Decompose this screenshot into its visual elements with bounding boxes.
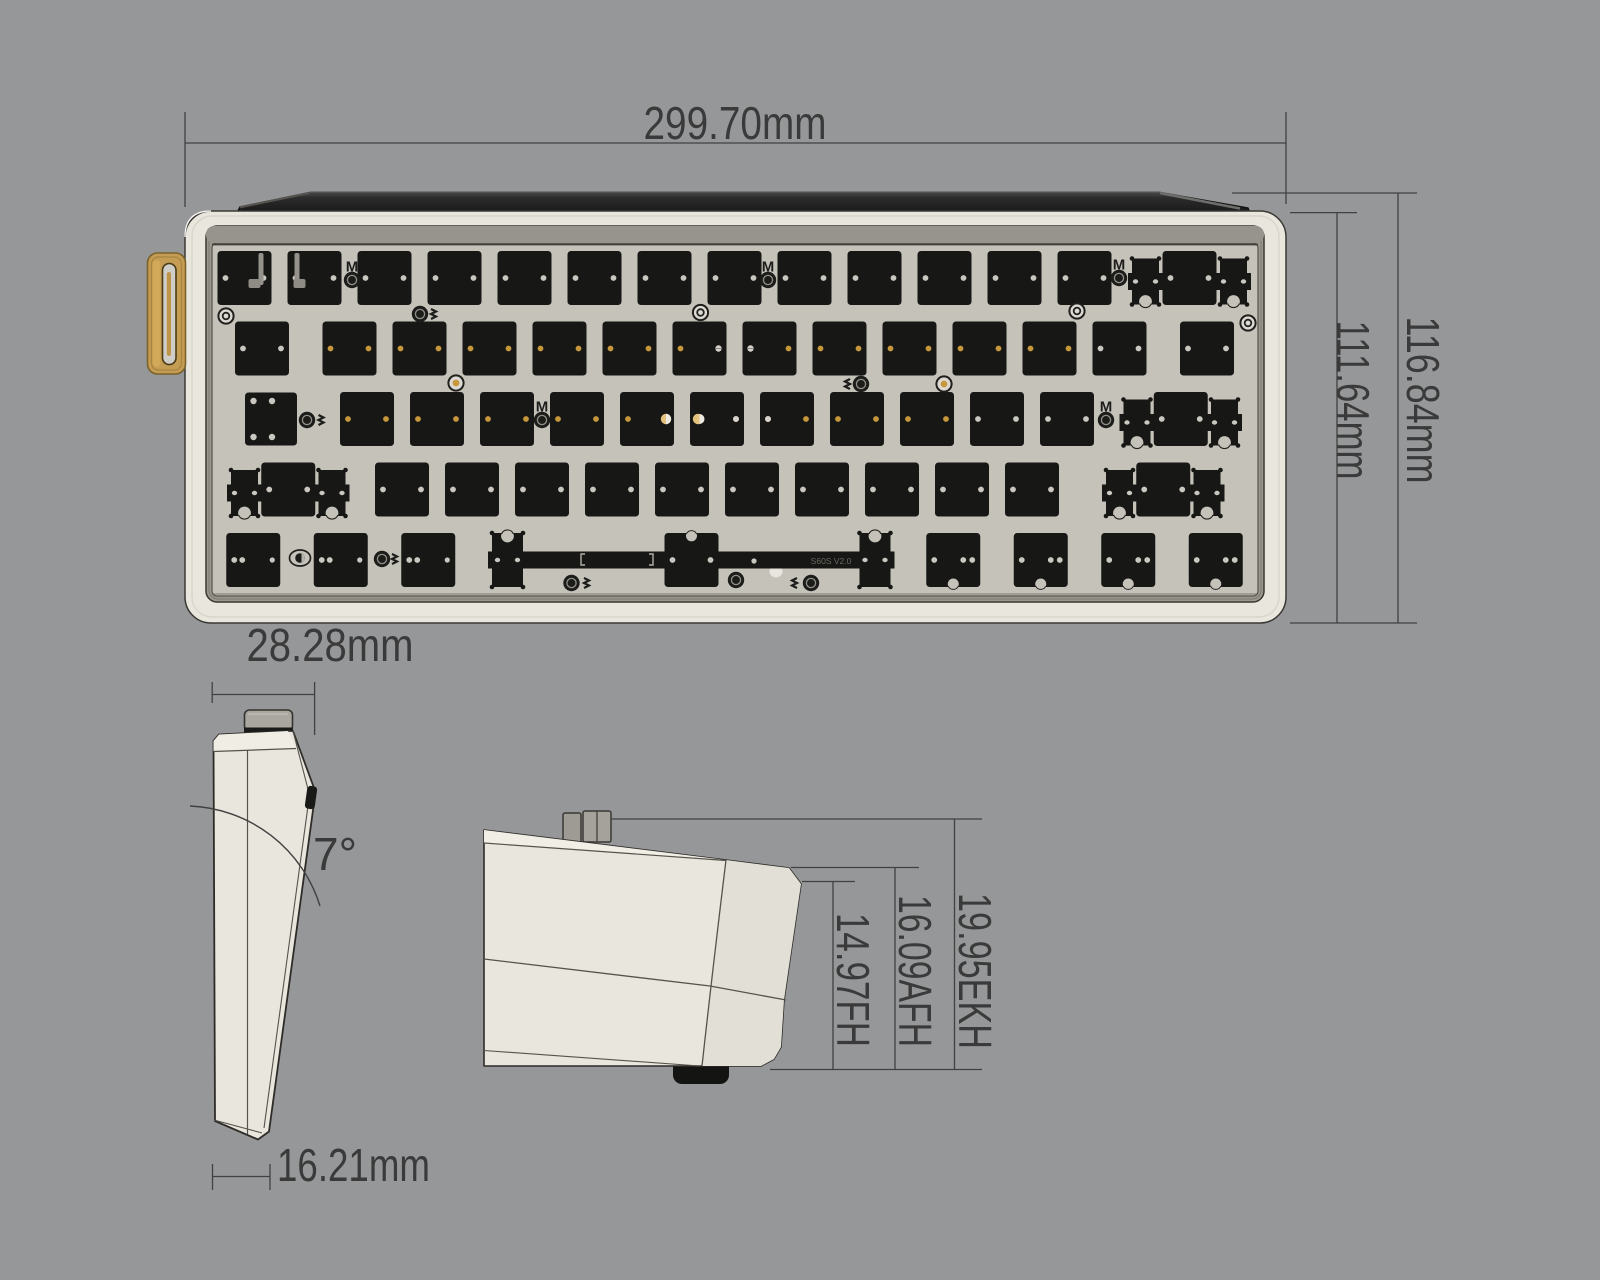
svg-text:299.70mm: 299.70mm bbox=[644, 97, 827, 149]
svg-text:16.09AFH: 16.09AFH bbox=[889, 895, 941, 1047]
svg-text:19.95EKH: 19.95EKH bbox=[949, 893, 1001, 1049]
svg-text:28.28mm: 28.28mm bbox=[247, 619, 414, 671]
svg-text:16.21mm: 16.21mm bbox=[277, 1139, 430, 1191]
svg-text:S60S V2.0: S60S V2.0 bbox=[811, 556, 852, 566]
svg-text:14.97FH: 14.97FH bbox=[827, 913, 879, 1047]
svg-text:7°: 7° bbox=[313, 828, 357, 880]
svg-text:116.84mm: 116.84mm bbox=[1397, 317, 1449, 484]
svg-text:111.64mm: 111.64mm bbox=[1327, 321, 1379, 480]
